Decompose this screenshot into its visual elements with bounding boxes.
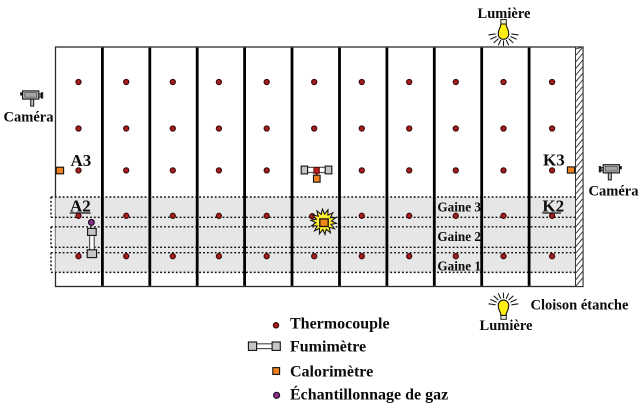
svg-text:Caméra: Caméra — [4, 110, 55, 126]
svg-text:Calorimètre: Calorimètre — [290, 364, 373, 381]
svg-text:Gaine 2: Gaine 2 — [437, 229, 481, 244]
svg-text:Thermocouple: Thermocouple — [290, 316, 390, 333]
svg-text:Gaine 3: Gaine 3 — [437, 200, 481, 215]
svg-text:Gaine 1: Gaine 1 — [437, 259, 481, 274]
svg-text:Lumière: Lumière — [480, 318, 533, 334]
svg-text:K3: K3 — [543, 151, 565, 170]
svg-text:Fumimètre: Fumimètre — [290, 339, 366, 356]
svg-text:Cloison étanche: Cloison étanche — [531, 298, 629, 314]
svg-text:A3: A3 — [71, 151, 92, 170]
svg-text:Échantillonnage de gaz: Échantillonnage de gaz — [290, 385, 448, 404]
svg-text:Caméra: Caméra — [589, 183, 640, 199]
